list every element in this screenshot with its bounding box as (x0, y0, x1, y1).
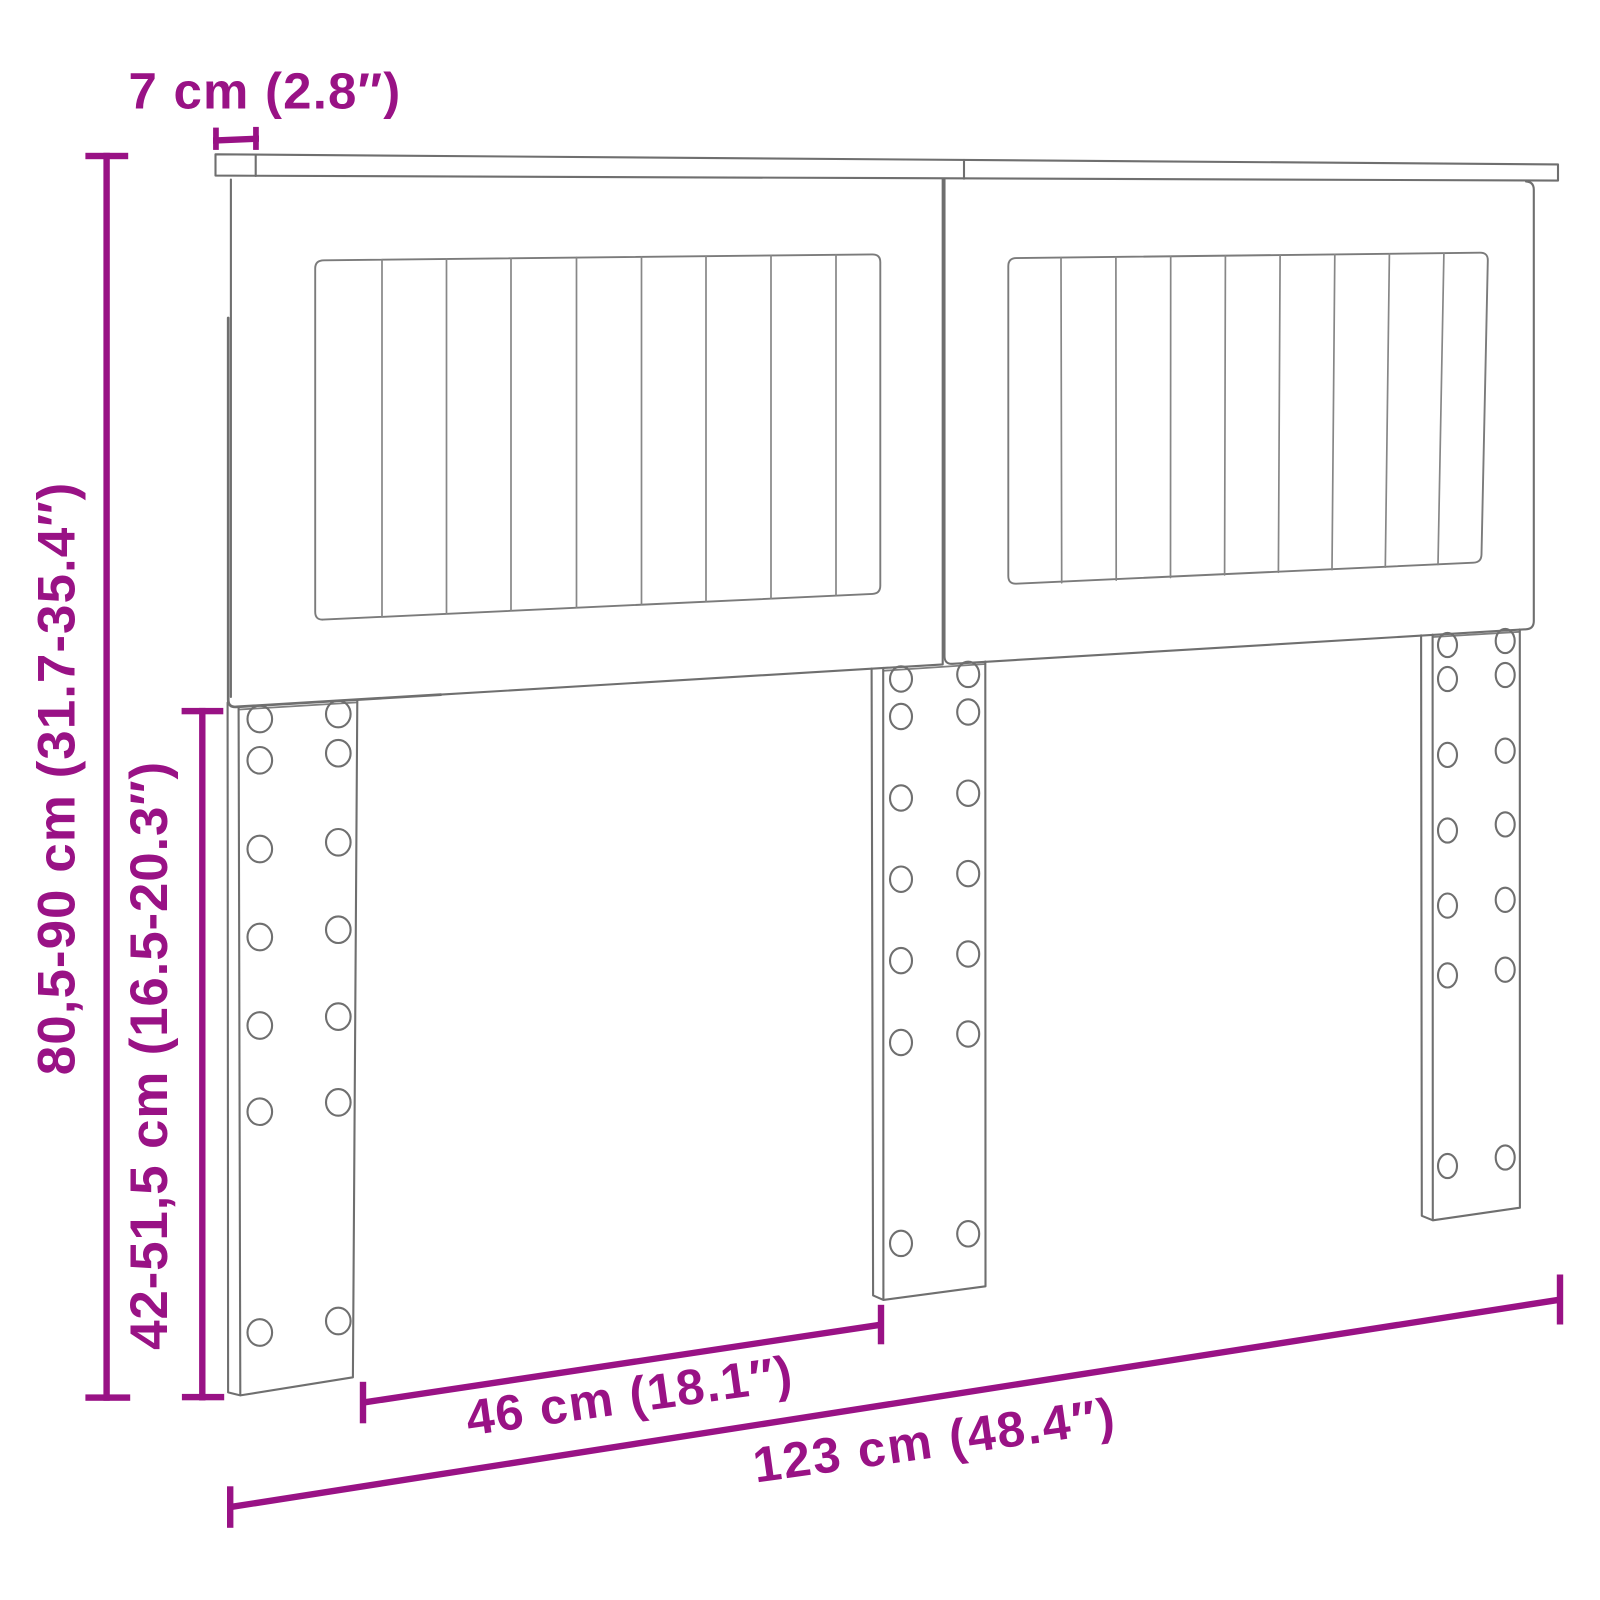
svg-text:7 cm (2.8″): 7 cm (2.8″) (129, 62, 402, 119)
svg-text:42-51,5 cm (16.5-20.3″): 42-51,5 cm (16.5-20.3″) (120, 761, 179, 1350)
svg-text:80,5-90 cm (31.7-35.4″): 80,5-90 cm (31.7-35.4″) (28, 482, 87, 1075)
